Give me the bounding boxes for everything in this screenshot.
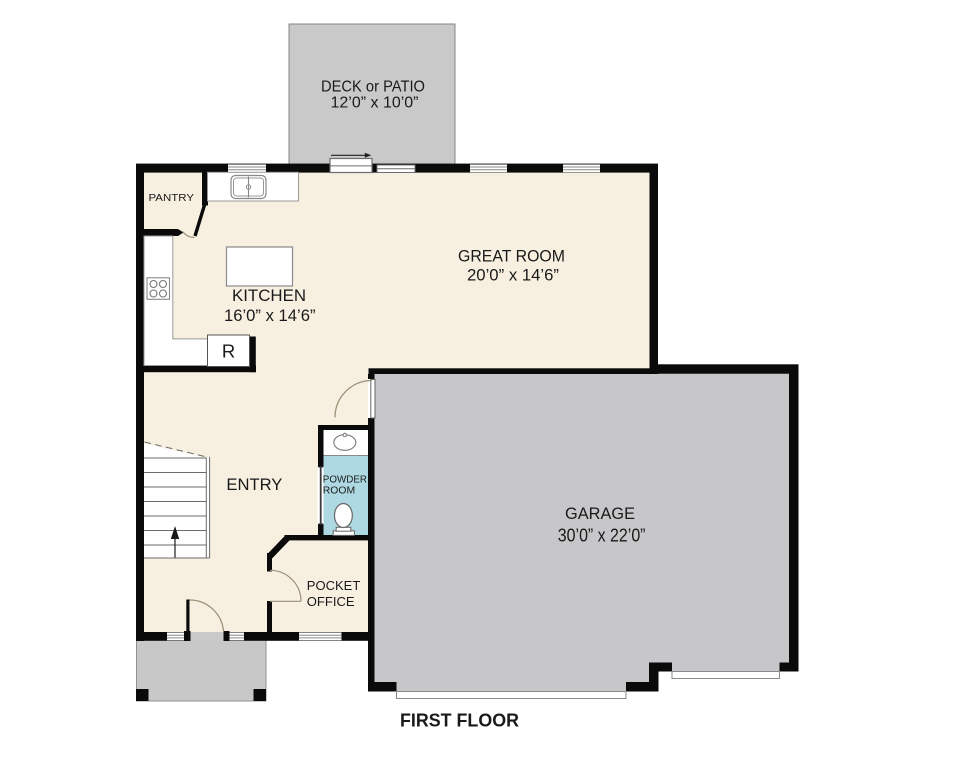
svg-text:ENTRY: ENTRY <box>226 476 282 494</box>
svg-text:PANTRY: PANTRY <box>149 193 195 204</box>
svg-text:R: R <box>222 341 235 362</box>
svg-text:DECK or PATIO: DECK or PATIO <box>321 78 425 95</box>
svg-text:16’0” x 14’6”: 16’0” x 14’6” <box>224 307 316 325</box>
svg-text:OFFICE: OFFICE <box>307 595 355 609</box>
svg-text:POCKET: POCKET <box>307 579 361 593</box>
svg-text:20’0” x 14’6”: 20’0” x 14’6” <box>467 266 559 284</box>
svg-text:30’0” x 22’0”: 30’0” x 22’0” <box>558 526 646 546</box>
svg-text:ROOM: ROOM <box>323 485 355 496</box>
svg-text:12’0” x 10’0”: 12’0” x 10’0” <box>331 94 419 111</box>
svg-text:GARAGE: GARAGE <box>565 505 635 523</box>
svg-text:GREAT ROOM: GREAT ROOM <box>458 247 565 265</box>
svg-text:POWDER: POWDER <box>323 475 367 486</box>
svg-text:FIRST FLOOR: FIRST FLOOR <box>400 710 519 731</box>
svg-text:KITCHEN: KITCHEN <box>232 287 306 305</box>
